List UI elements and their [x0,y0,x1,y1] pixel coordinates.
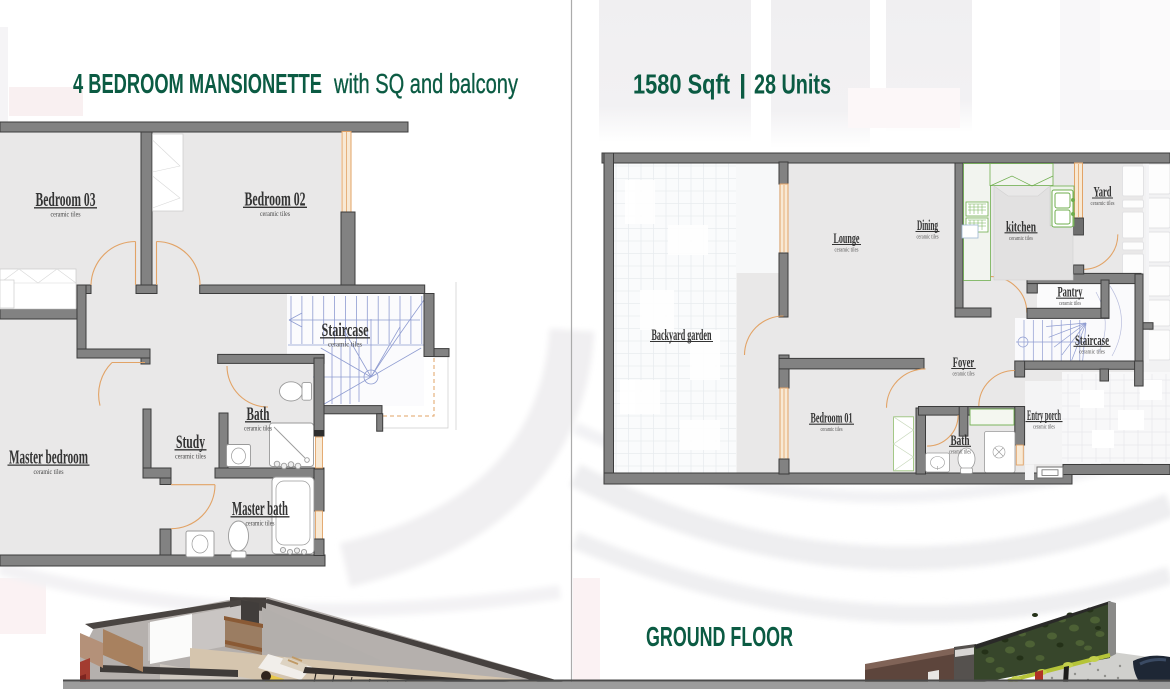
svg-text:ceramic tiles: ceramic tiles [949,449,971,455]
svg-text:ceramic tiles: ceramic tiles [328,340,362,349]
svg-text:ceramic tiles: ceramic tiles [1091,201,1116,207]
svg-text:ceramic tiles: ceramic tiles [260,209,290,218]
svg-text:4 BEDROOM MANSIONETTE: 4 BEDROOM MANSIONETTE [73,68,322,99]
svg-text:28 Units: 28 Units [754,69,831,100]
svg-text:ceramic tiles: ceramic tiles [1033,425,1055,431]
svg-text:1580 Sqft: 1580 Sqft [633,69,730,100]
svg-text:ceramic tiles: ceramic tiles [51,210,81,219]
svg-text:ceramic tiles: ceramic tiles [175,452,206,461]
svg-text:ceramic tiles: ceramic tiles [34,467,64,476]
svg-text:ceramic tiles: ceramic tiles [1079,349,1106,355]
svg-text:ceramic tiles: ceramic tiles [1059,301,1081,307]
svg-text:ceramic tiles: ceramic tiles [246,519,275,528]
svg-text:|: | [739,69,746,99]
svg-text:ceramic tiles: ceramic tiles [821,427,843,433]
svg-text:ceramic tiles: ceramic tiles [917,235,939,241]
svg-text:with SQ and balcony: with SQ and balcony [333,68,518,99]
svg-text:ceramic tiles: ceramic tiles [244,424,272,433]
svg-text:ceramic tiles: ceramic tiles [953,372,975,378]
svg-text:ceramic tiles: ceramic tiles [835,248,860,254]
svg-text:ceramic tiles: ceramic tiles [1009,236,1034,242]
svg-text:GROUND FLOOR: GROUND FLOOR [646,621,793,652]
